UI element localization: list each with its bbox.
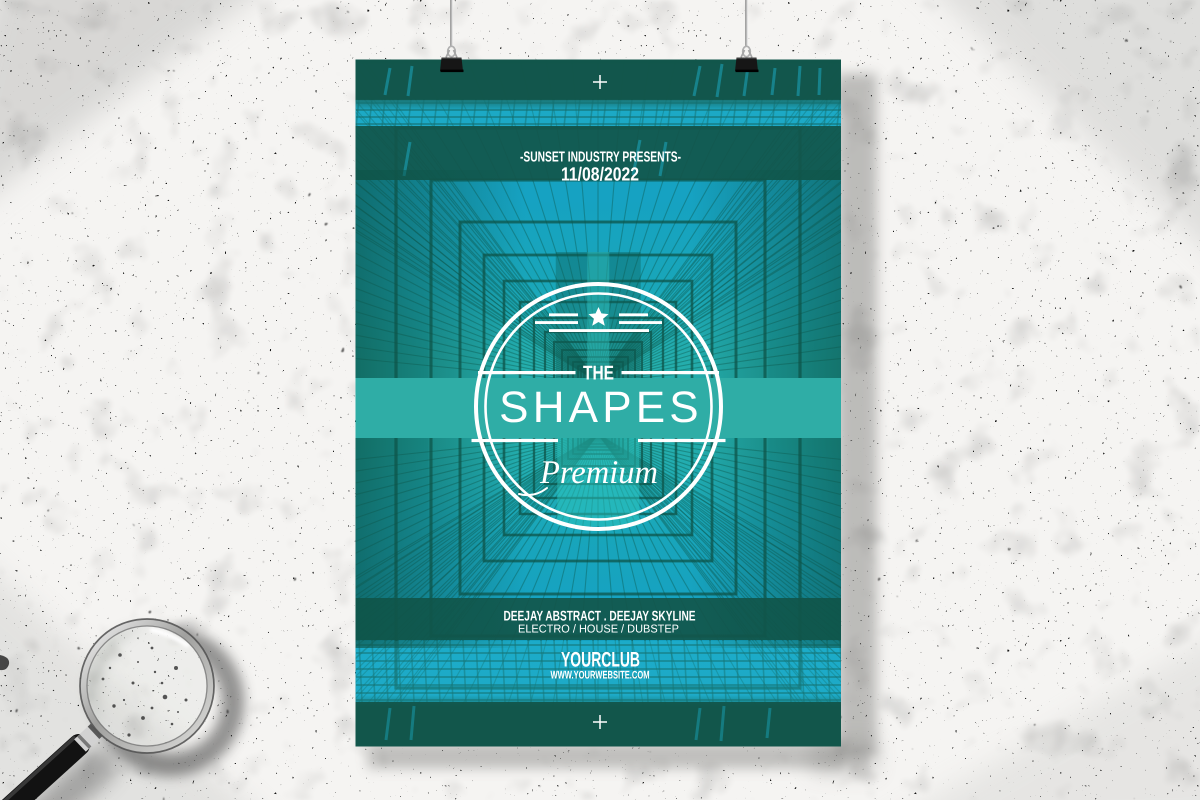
- svg-text:ELECTRO / HOUSE / DUBSTEP: ELECTRO / HOUSE / DUBSTEP: [518, 624, 679, 636]
- svg-text:YOURCLUB: YOURCLUB: [561, 649, 640, 672]
- svg-text:11/08/2022: 11/08/2022: [561, 165, 639, 186]
- svg-text:Premium: Premium: [539, 455, 658, 491]
- svg-text:WWW.YOURWEBSITE.COM: WWW.YOURWEBSITE.COM: [551, 670, 650, 682]
- svg-text:-SUNSET INDUSTRY PRESENTS-: -SUNSET INDUSTRY PRESENTS-: [520, 150, 681, 166]
- svg-text:THE: THE: [583, 363, 614, 385]
- svg-text:DEEJAY ABSTRACT . DEEJAY SKYLI: DEEJAY ABSTRACT . DEEJAY SKYLINE: [504, 608, 696, 624]
- svg-text:SHAPES: SHAPES: [499, 383, 703, 432]
